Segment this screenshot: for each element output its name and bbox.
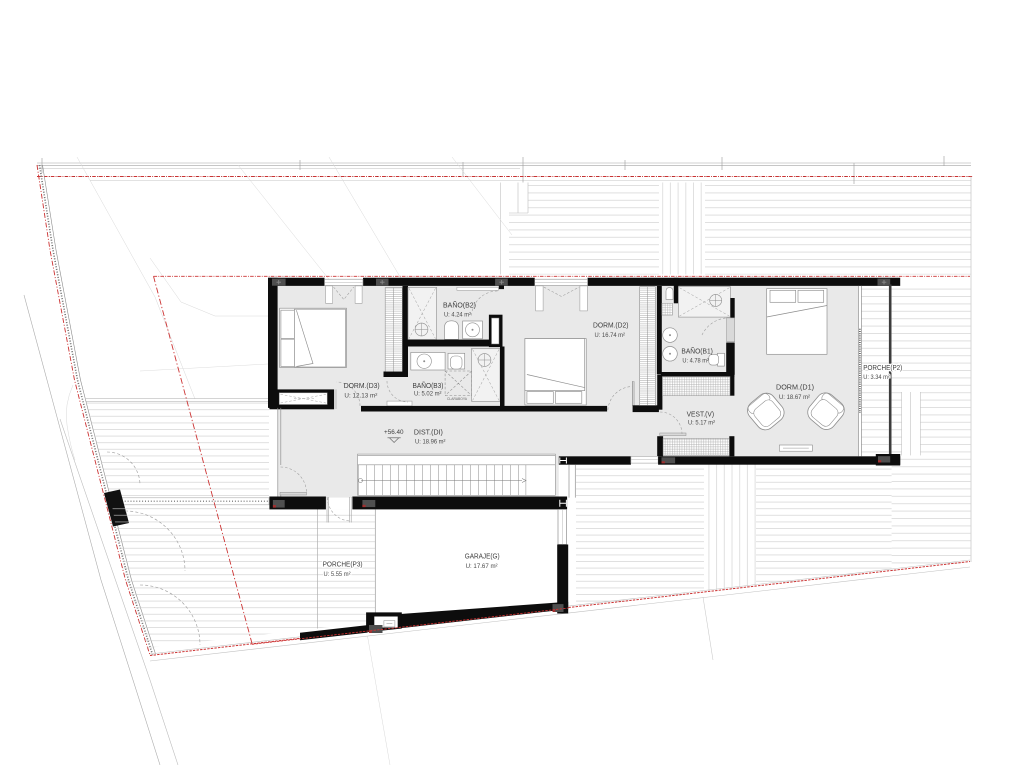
svg-text:U: 5.17 m²: U: 5.17 m² xyxy=(688,420,715,427)
svg-text:BAÑO(B3): BAÑO(B3) xyxy=(413,381,444,390)
svg-text:CLARABOYA: CLARABOYA xyxy=(447,397,468,401)
svg-text:U: 17.67 m²: U: 17.67 m² xyxy=(466,563,498,570)
svg-text:U: 16.74 m²: U: 16.74 m² xyxy=(595,332,626,339)
svg-text:U: 18.67 m²: U: 18.67 m² xyxy=(779,394,810,401)
svg-text:U: 3.34 m²: U: 3.34 m² xyxy=(863,374,890,381)
svg-text:+56.40: +56.40 xyxy=(384,429,404,436)
svg-text:GARAJE(G): GARAJE(G) xyxy=(465,551,500,560)
svg-text:U: 4.78 m²: U: 4.78 m² xyxy=(682,357,709,364)
svg-text:PORCHE(P3): PORCHE(P3) xyxy=(323,559,363,568)
svg-text:VEST.(V): VEST.(V) xyxy=(687,409,715,418)
svg-text:U: 5.55 m²: U: 5.55 m² xyxy=(324,571,351,578)
svg-text:U: 5.02 m²: U: 5.02 m² xyxy=(414,391,442,398)
svg-text:BAÑO(B1): BAÑO(B1) xyxy=(681,346,713,355)
svg-text:DIST.(DI): DIST.(DI) xyxy=(414,428,443,437)
svg-text:DORM.(D3): DORM.(D3) xyxy=(344,381,380,390)
svg-text:BAÑO(B2): BAÑO(B2) xyxy=(443,301,476,310)
svg-text:DORM.(D2): DORM.(D2) xyxy=(593,321,629,330)
svg-text:U: 12.13 m²: U: 12.13 m² xyxy=(344,392,377,399)
svg-text:PORCHE(P2): PORCHE(P2) xyxy=(863,363,902,372)
svg-text:U: 18.96 m²: U: 18.96 m² xyxy=(415,439,446,446)
svg-text:U: 4.24 m²: U: 4.24 m² xyxy=(444,312,471,319)
svg-text:DORM.(D1): DORM.(D1) xyxy=(776,382,814,391)
